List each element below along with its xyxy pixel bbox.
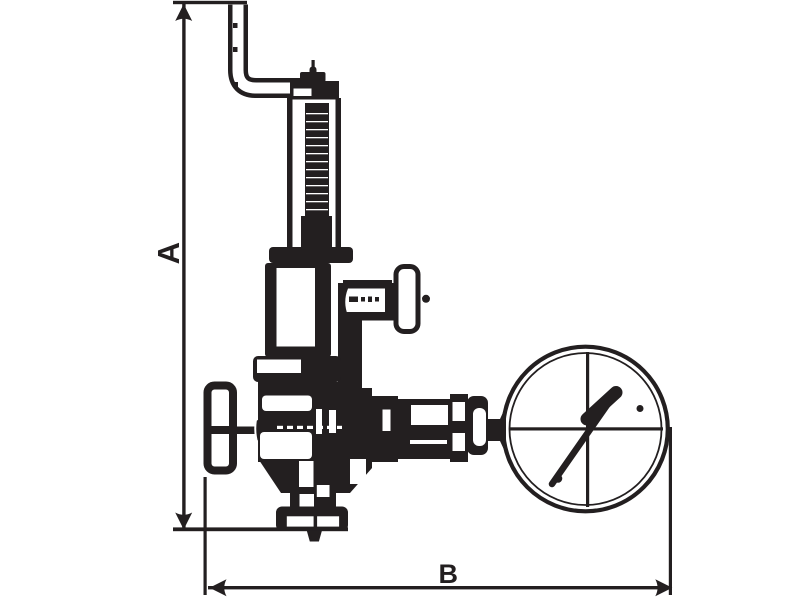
svg-text:A: A [151,242,186,264]
svg-text:B: B [439,559,459,589]
